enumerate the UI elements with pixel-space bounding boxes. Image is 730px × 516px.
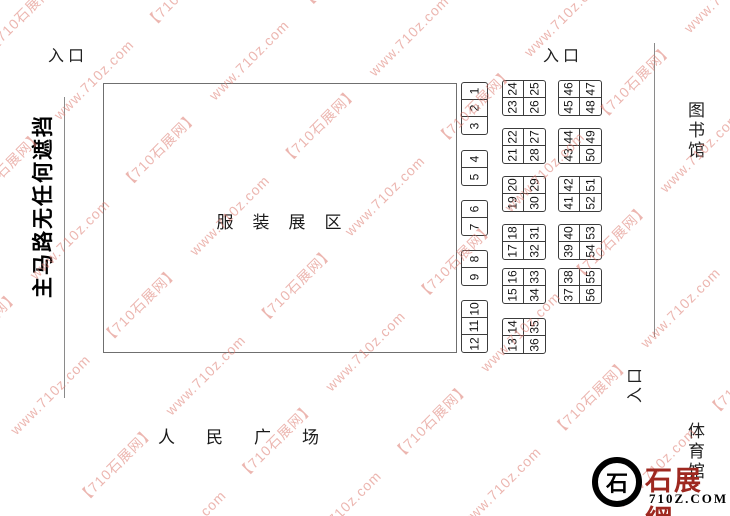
booth-cell: 19 [503, 194, 524, 211]
booth-cell: 42 [559, 177, 580, 194]
booth-cell: 48 [580, 98, 601, 115]
booth-number: 37 [562, 288, 576, 301]
booth-block: 67 [461, 200, 488, 236]
booth-number: 1 [468, 88, 482, 95]
booth-cell: 38 [559, 269, 580, 286]
booth-number: 29 [527, 178, 541, 191]
booth-number: 15 [506, 288, 520, 301]
logo-site-text: 710Z.COM [649, 491, 728, 507]
booth-number: 14 [506, 320, 520, 333]
booth-number: 40 [562, 226, 576, 239]
booth-cell: 26 [524, 98, 545, 115]
entrance-label-top-center: 入口 [543, 42, 583, 66]
booth-number: 36 [527, 338, 541, 351]
booth-block: 46474548 [558, 80, 602, 116]
booth-cell: 14 [503, 319, 524, 336]
booth-number: 28 [527, 148, 541, 161]
left-boundary-line [64, 97, 65, 398]
logo-circle-icon: 石 [592, 457, 642, 507]
booth-cell: 35 [524, 319, 545, 336]
booth-number: 35 [527, 320, 541, 333]
booth-number: 24 [506, 82, 520, 95]
booth-block: 38553756 [558, 268, 602, 304]
booth-number: 56 [583, 288, 597, 301]
booth-number: 32 [527, 244, 541, 257]
booth-cell: 53 [580, 225, 601, 242]
booth-number: 46 [562, 82, 576, 95]
booth-block: 101112 [461, 300, 488, 353]
booth-cell: 9 [462, 268, 487, 285]
booth-block: 24252326 [502, 80, 546, 116]
entrance-label-top-left: 入口 [48, 42, 88, 66]
booth-number: 22 [506, 130, 520, 143]
booth-cell: 25 [524, 81, 545, 98]
booth-cell: 31 [524, 225, 545, 242]
booth-cell: 34 [524, 286, 545, 303]
booth-number: 5 [468, 173, 482, 180]
booth-block: 44494350 [558, 128, 602, 164]
booth-cell: 54 [580, 242, 601, 259]
booth-number: 17 [506, 244, 520, 257]
booth-cell: 4 [462, 151, 487, 168]
booth-number: 18 [506, 226, 520, 239]
booth-cell: 46 [559, 81, 580, 98]
booth-block: 40533954 [558, 224, 602, 260]
booth-number: 20 [506, 178, 520, 191]
booth-cell: 5 [462, 168, 487, 185]
booth-number: 3 [468, 122, 482, 129]
booth-number: 6 [468, 206, 482, 213]
booth-block: 89 [461, 250, 488, 286]
booth-number: 30 [527, 196, 541, 209]
booth-cell: 32 [524, 242, 545, 259]
booth-number: 49 [583, 130, 597, 143]
booth-number: 16 [506, 270, 520, 283]
logo-symbol: 石 [606, 466, 628, 498]
logo-brand-text: 石展網 [645, 459, 730, 516]
booth-cell: 55 [580, 269, 601, 286]
booth-cell: 8 [462, 251, 487, 268]
booth-number: 2 [468, 105, 482, 112]
booth-number: 51 [583, 178, 597, 191]
booth-block: 45 [461, 150, 488, 186]
booth-number: 53 [583, 226, 597, 239]
booth-cell: 43 [559, 146, 580, 163]
booth-cell: 50 [580, 146, 601, 163]
main-road-label: 主马路无任何遮挡 [27, 114, 57, 298]
booth-cell: 15 [503, 286, 524, 303]
booth-number: 26 [527, 100, 541, 113]
booth-cell: 30 [524, 194, 545, 211]
booth-number: 9 [468, 273, 482, 280]
booth-number: 11 [468, 320, 482, 332]
booth-number: 48 [583, 100, 597, 113]
booth-number: 23 [506, 100, 520, 113]
booth-cell: 36 [524, 336, 545, 353]
booth-number: 47 [583, 82, 597, 95]
right-boundary-line [654, 43, 655, 337]
booth-cell: 13 [503, 336, 524, 353]
booth-number: 50 [583, 148, 597, 161]
booth-block: 14351336 [502, 318, 546, 354]
booth-cell: 33 [524, 269, 545, 286]
booth-cell: 24 [503, 81, 524, 98]
booth-cell: 23 [503, 98, 524, 115]
booth-number: 8 [468, 256, 482, 263]
booth-number: 27 [527, 130, 541, 143]
booth-cell: 11 [462, 318, 487, 335]
booth-cell: 45 [559, 98, 580, 115]
booth-number: 39 [562, 244, 576, 257]
booth-number: 41 [562, 196, 576, 209]
booth-number: 31 [527, 226, 541, 239]
booth-cell: 20 [503, 177, 524, 194]
booth-cell: 18 [503, 225, 524, 242]
booth-number: 19 [506, 196, 520, 209]
booth-cell: 27 [524, 129, 545, 146]
booth-number: 10 [467, 302, 481, 315]
booth-cell: 3 [462, 117, 487, 134]
booth-number: 25 [527, 82, 541, 95]
booth-number: 21 [506, 148, 520, 161]
booth-number: 33 [527, 270, 541, 283]
booth-block: 20291930 [502, 176, 546, 212]
booth-cell: 7 [462, 218, 487, 235]
library-label: 图书馆 [682, 101, 707, 161]
booth-number: 55 [583, 270, 597, 283]
booth-cell: 1 [462, 83, 487, 100]
booth-cell: 16 [503, 269, 524, 286]
booth-cell: 44 [559, 129, 580, 146]
booth-cell: 12 [462, 335, 487, 352]
booth-cell: 51 [580, 177, 601, 194]
booth-number: 45 [562, 100, 576, 113]
booth-number: 38 [562, 270, 576, 283]
booth-cell: 47 [580, 81, 601, 98]
booth-number: 43 [562, 148, 576, 161]
entrance-label-bottom-right: 入口 [621, 365, 645, 403]
booth-block: 16331534 [502, 268, 546, 304]
booth-cell: 56 [580, 286, 601, 303]
booth-cell: 49 [580, 129, 601, 146]
exhibit-area-label: 服装展区 [103, 208, 455, 233]
booth-block: 123 [461, 82, 488, 135]
booth-number: 54 [583, 244, 597, 257]
booth-cell: 29 [524, 177, 545, 194]
booth-cell: 6 [462, 201, 487, 218]
booth-cell: 21 [503, 146, 524, 163]
booth-number: 13 [506, 338, 520, 351]
booth-cell: 52 [580, 194, 601, 211]
booth-number: 34 [527, 288, 541, 301]
floor-plan: 入口 入口 入口 主马路无任何遮挡 服装展区 12345678910111224… [0, 0, 730, 516]
booth-number: 42 [562, 178, 576, 191]
booth-block: 18311732 [502, 224, 546, 260]
booth-number: 44 [562, 130, 576, 143]
booth-number: 52 [583, 196, 597, 209]
booth-cell: 39 [559, 242, 580, 259]
plaza-label: 人民广场 [158, 423, 350, 448]
booth-block: 22272128 [502, 128, 546, 164]
booth-cell: 10 [462, 301, 487, 318]
booth-cell: 28 [524, 146, 545, 163]
booth-block: 42514152 [558, 176, 602, 212]
booth-cell: 22 [503, 129, 524, 146]
booth-cell: 37 [559, 286, 580, 303]
booth-cell: 2 [462, 100, 487, 117]
booth-number: 7 [468, 223, 482, 230]
booth-cell: 17 [503, 242, 524, 259]
booth-number: 4 [468, 156, 482, 163]
booth-cell: 41 [559, 194, 580, 211]
booth-cell: 40 [559, 225, 580, 242]
booth-number: 12 [467, 337, 481, 350]
